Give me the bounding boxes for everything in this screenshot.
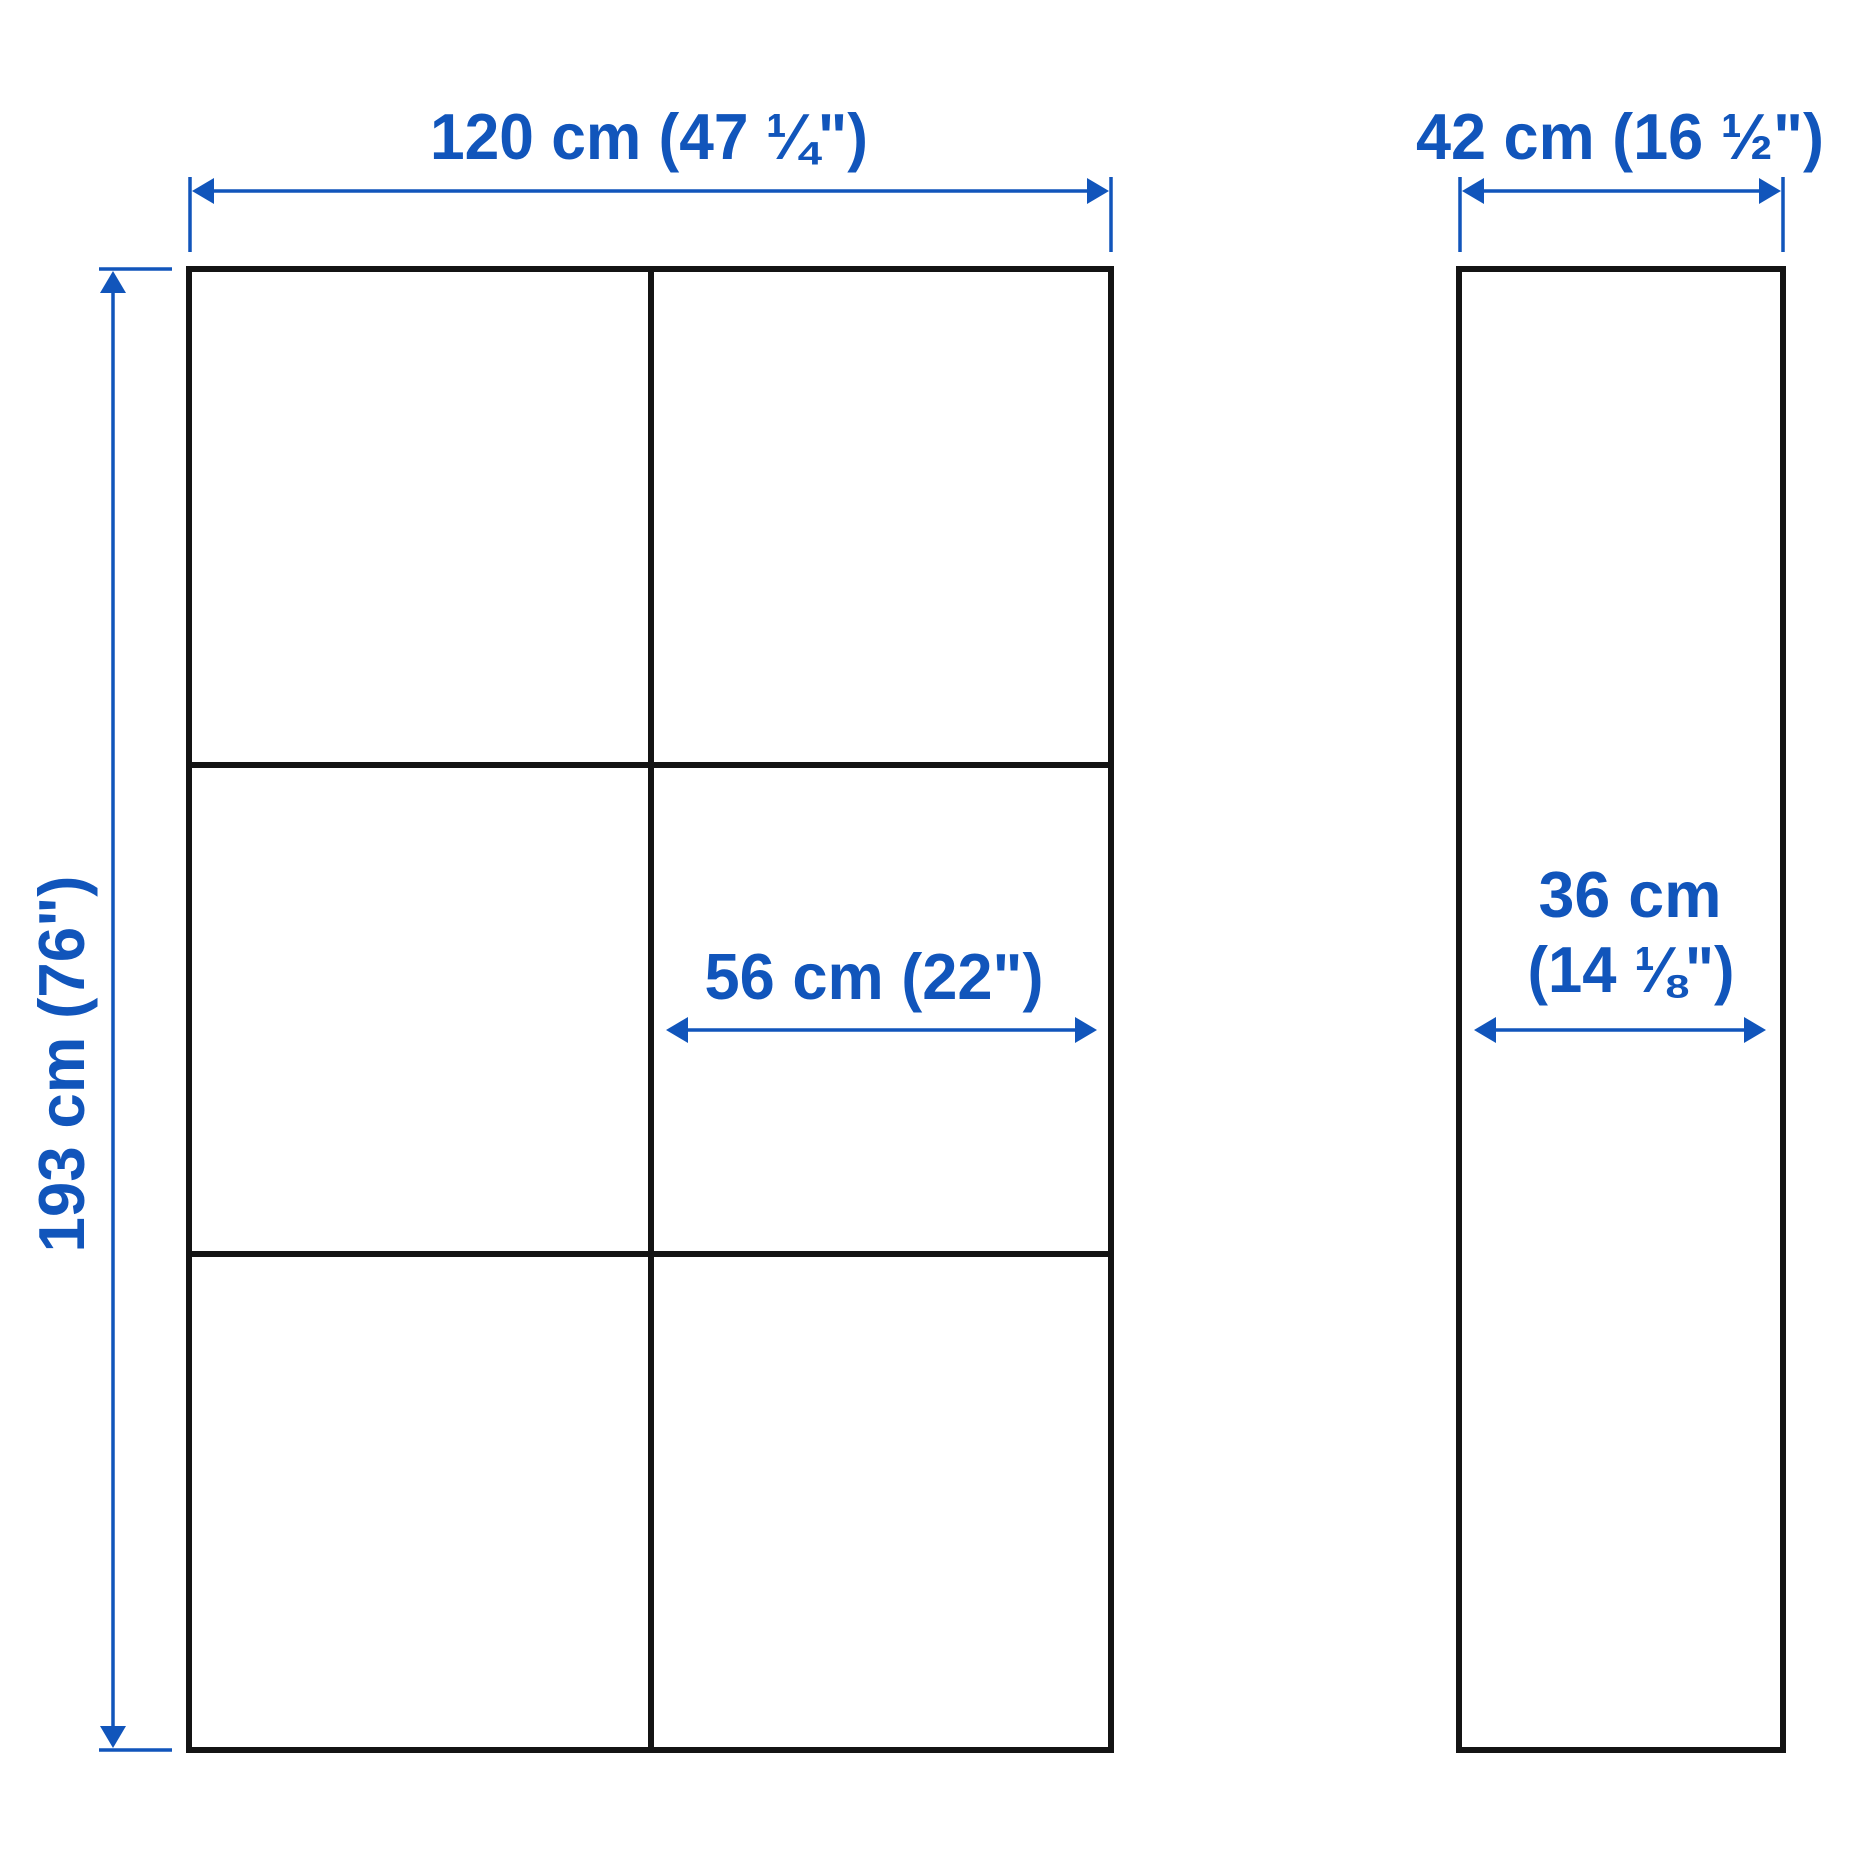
svg-text:193 cm (76"): 193 cm (76") bbox=[25, 876, 98, 1253]
svg-text:42 cm (16 ½"): 42 cm (16 ½") bbox=[1416, 100, 1824, 173]
svg-text:36 cm: 36 cm bbox=[1539, 858, 1722, 931]
svg-text:120 cm (47 ¼"): 120 cm (47 ¼") bbox=[430, 100, 868, 173]
svg-text:(14 ⅛"): (14 ⅛") bbox=[1528, 933, 1735, 1006]
svg-text:56 cm (22"): 56 cm (22") bbox=[705, 940, 1044, 1013]
